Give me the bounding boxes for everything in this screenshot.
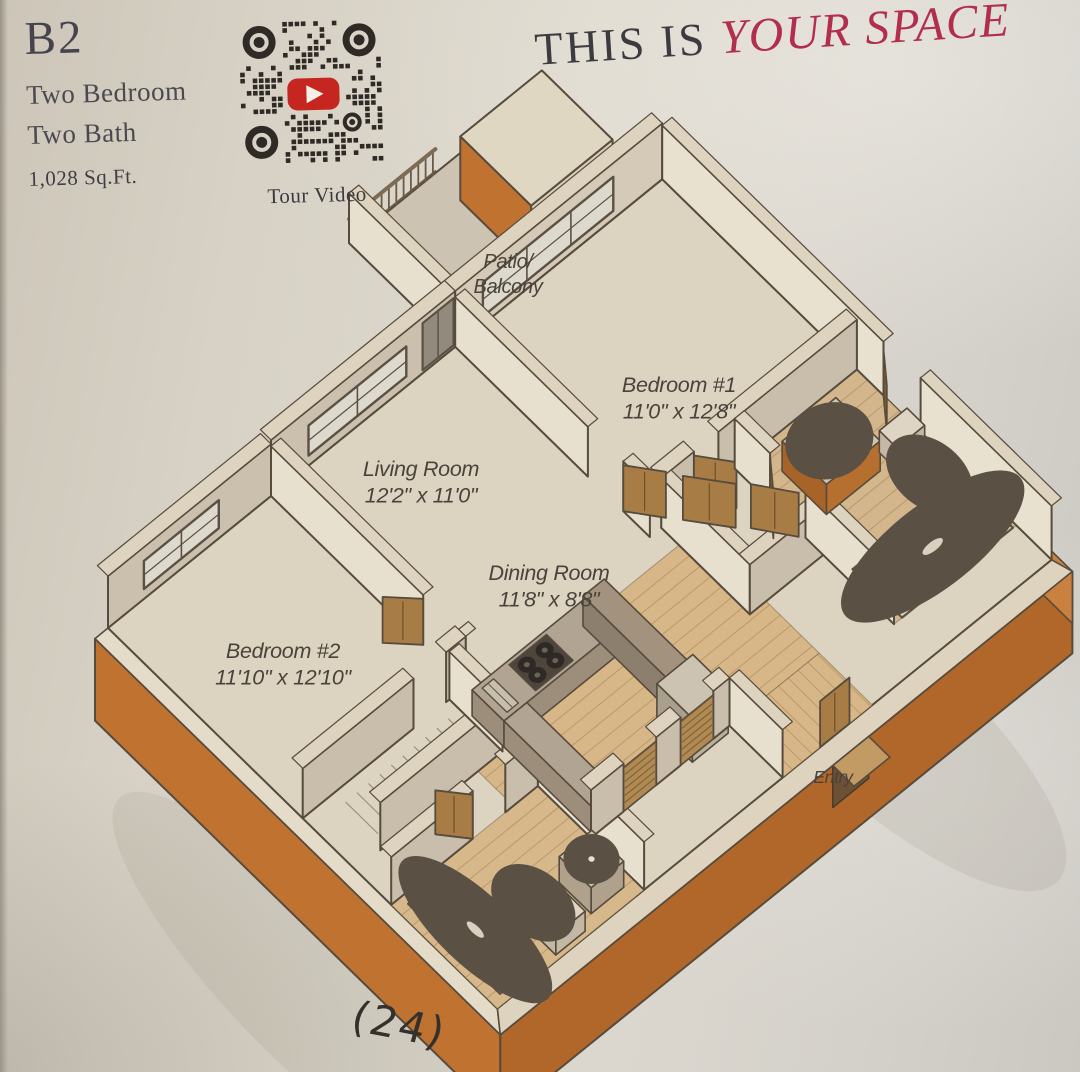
plan-type-line1: Two Bedroom	[26, 75, 187, 110]
plan-code: B2	[24, 12, 186, 63]
room-label-bed1: Bedroom #1	[622, 373, 736, 397]
plan-area: 1,028 Sq.Ft.	[28, 162, 189, 191]
room-label-bed1: 11'0" x 12'8"	[623, 400, 737, 424]
room-label-living: Living Room	[363, 457, 479, 481]
room-label-patio: Patio/	[483, 251, 535, 273]
room-label-entry: Entry	[813, 767, 854, 787]
room-label-dining: 11'8" x 8'8"	[499, 588, 601, 612]
qr-caption: Tour Video	[242, 181, 393, 210]
room-label-bed2: Bedroom #2	[226, 639, 340, 663]
plan-header: B2 Two Bedroom Two Bath 1,028 Sq.Ft.	[24, 12, 189, 192]
room-label-patio: Balcony	[473, 276, 543, 298]
room-label-dining: Dining Room	[489, 561, 610, 585]
brochure-photo: { "header": { "plan_code": "B2", "type_l…	[0, 0, 1080, 1072]
qr-code	[238, 18, 392, 172]
room-label-living: 12'2" x 11'0"	[365, 484, 479, 508]
headline-prefix: THIS IS	[533, 12, 722, 75]
qr-block: Tour Video	[238, 18, 393, 210]
room-label-bed2: 11'10" x 12'10"	[215, 666, 352, 690]
plan-type-line2: Two Bath	[27, 115, 188, 150]
